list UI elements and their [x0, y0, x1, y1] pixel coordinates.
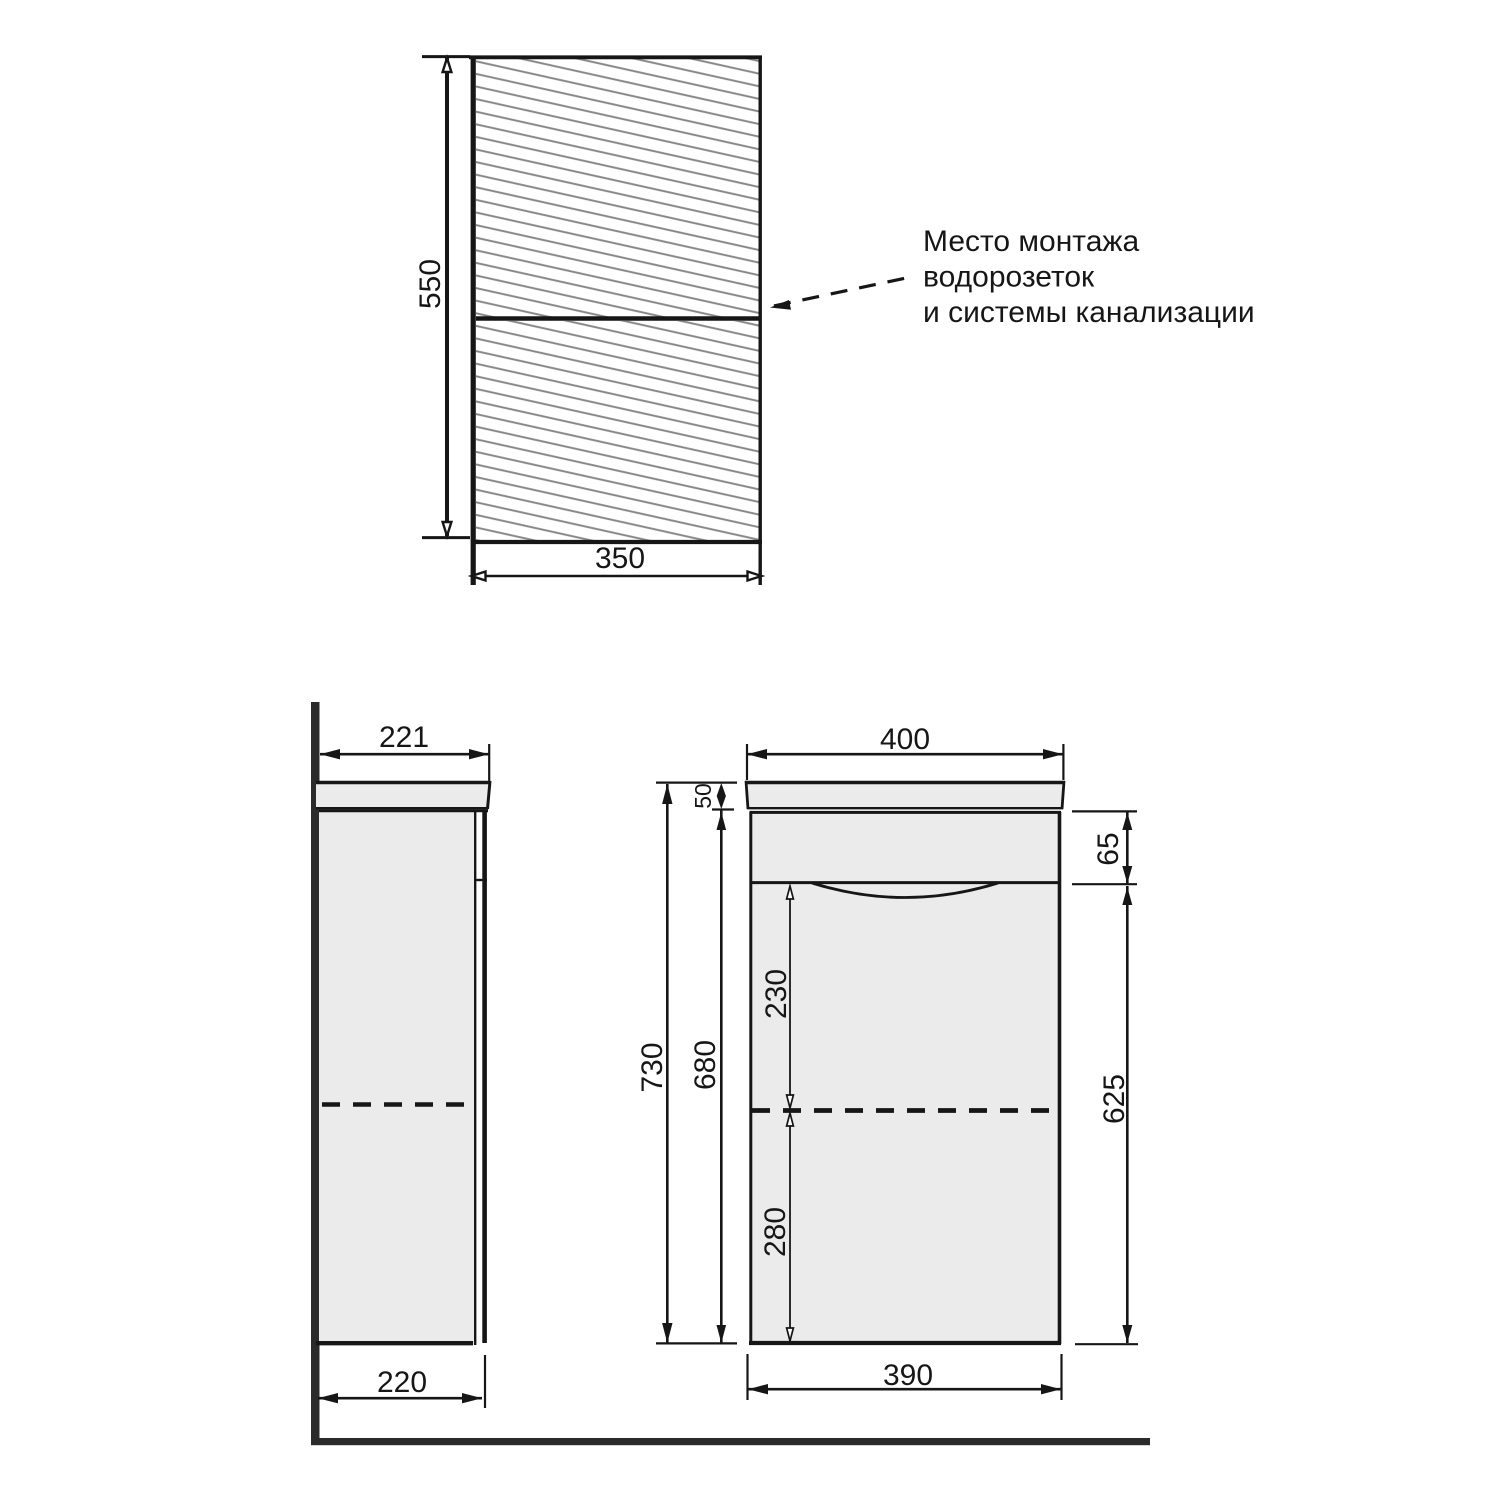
svg-text:625: 625 — [1098, 1074, 1131, 1124]
svg-text:водорозеток: водорозеток — [923, 261, 1095, 294]
svg-text:Место монтажа: Место монтажа — [923, 225, 1139, 258]
svg-text:680: 680 — [689, 1040, 722, 1090]
svg-text:280: 280 — [759, 1207, 792, 1257]
svg-text:50: 50 — [690, 783, 716, 809]
svg-text:65: 65 — [1092, 832, 1125, 865]
svg-text:390: 390 — [883, 1359, 933, 1392]
svg-text:230: 230 — [760, 969, 793, 1019]
svg-text:350: 350 — [595, 542, 645, 575]
svg-text:и системы канализации: и системы канализации — [923, 296, 1255, 329]
svg-text:221: 221 — [379, 721, 429, 754]
svg-text:220: 220 — [377, 1366, 427, 1399]
svg-text:730: 730 — [636, 1042, 669, 1092]
svg-text:400: 400 — [880, 723, 930, 756]
svg-text:550: 550 — [414, 259, 447, 309]
